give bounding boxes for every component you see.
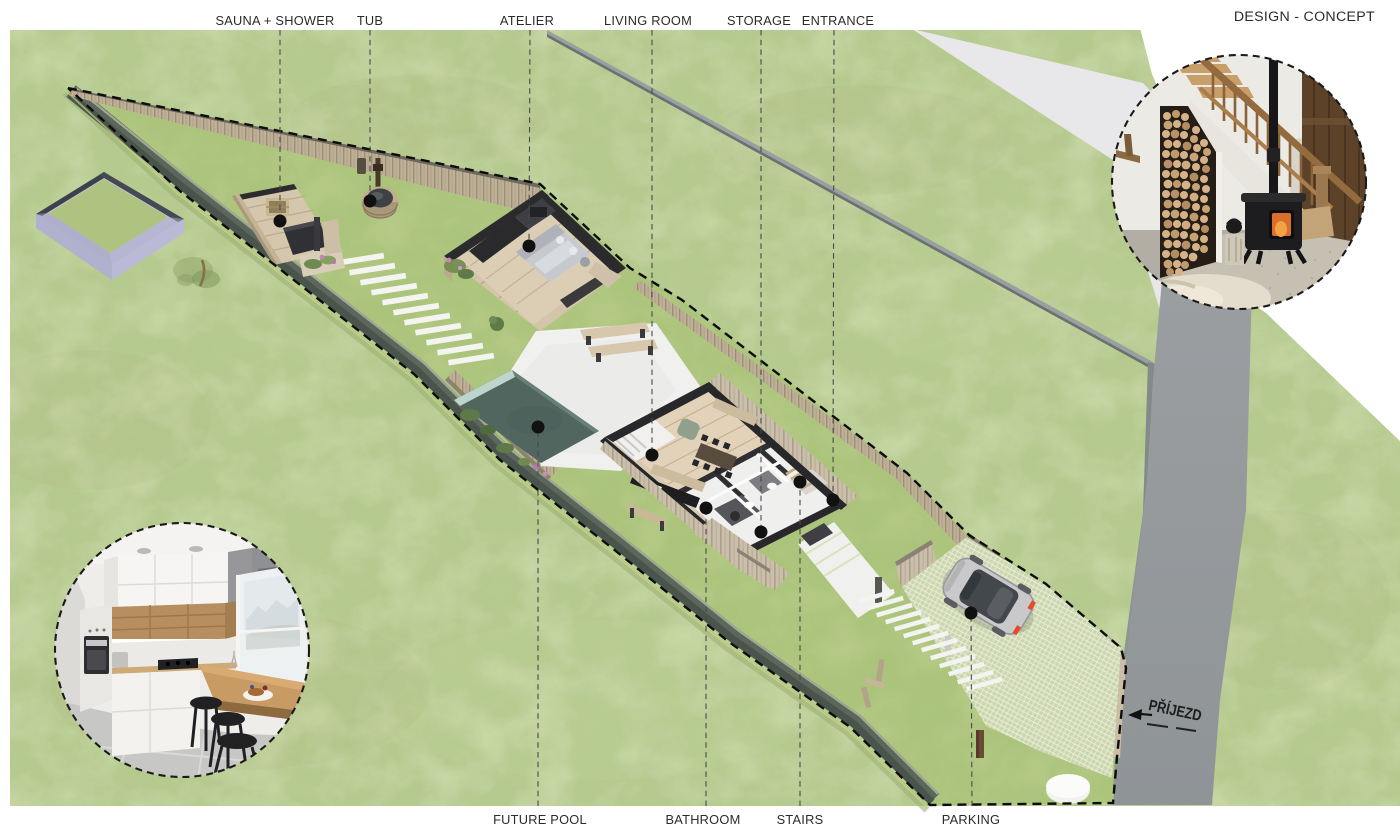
svg-text:ATELIER: ATELIER xyxy=(500,13,554,28)
svg-text:SAUNA + SHOWER: SAUNA + SHOWER xyxy=(215,13,334,28)
svg-text:FUTURE POOL: FUTURE POOL xyxy=(493,812,587,827)
svg-text:PARKING: PARKING xyxy=(942,812,1000,827)
svg-text:LIVING ROOM: LIVING ROOM xyxy=(604,13,692,28)
svg-text:STAIRS: STAIRS xyxy=(777,812,824,827)
svg-text:BATHROOM: BATHROOM xyxy=(666,812,741,827)
svg-text:DESIGN - CONCEPT: DESIGN - CONCEPT xyxy=(1234,9,1375,25)
svg-text:STORAGE: STORAGE xyxy=(727,13,791,28)
svg-text:ENTRANCE: ENTRANCE xyxy=(802,13,874,28)
svg-text:TUB: TUB xyxy=(357,13,383,28)
